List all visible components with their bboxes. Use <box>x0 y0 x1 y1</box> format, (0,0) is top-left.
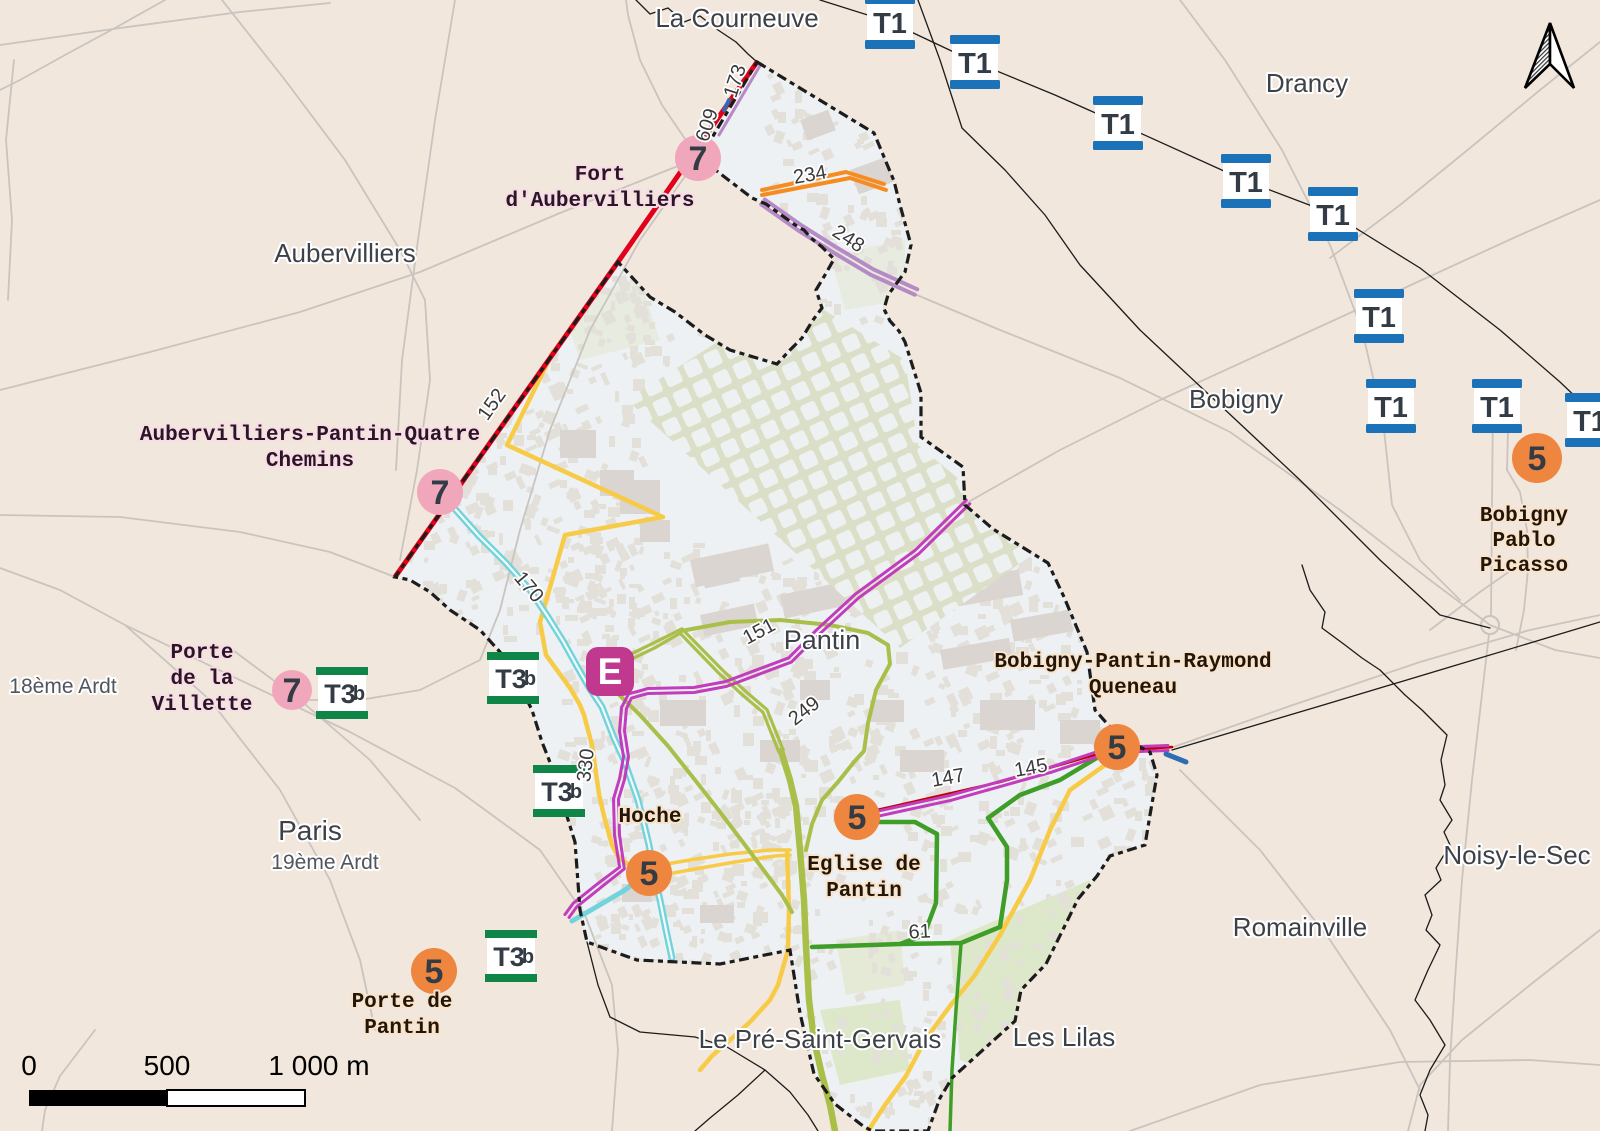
svg-text:Queneau: Queneau <box>1089 677 1177 700</box>
svg-text:b: b <box>353 683 365 705</box>
svg-text:Les Lilas: Les Lilas <box>1013 1022 1116 1052</box>
svg-text:T1: T1 <box>1362 302 1396 334</box>
svg-text:T1: T1 <box>1480 392 1514 424</box>
svg-text:Picasso: Picasso <box>1480 555 1568 578</box>
svg-text:7: 7 <box>689 140 708 178</box>
svg-text:Drancy: Drancy <box>1266 68 1348 98</box>
svg-text:1 000 m: 1 000 m <box>268 1050 369 1081</box>
svg-text:7: 7 <box>283 672 302 710</box>
svg-text:T1: T1 <box>1316 200 1350 232</box>
svg-text:d'Aubervilliers: d'Aubervilliers <box>505 190 694 213</box>
svg-text:T1: T1 <box>1101 109 1135 141</box>
svg-text:b: b <box>522 946 534 968</box>
svg-text:Bobigny: Bobigny <box>1480 505 1569 528</box>
svg-text:61: 61 <box>908 920 931 943</box>
svg-text:La Courneuve: La Courneuve <box>655 3 818 33</box>
svg-text:T1: T1 <box>1229 167 1263 199</box>
svg-text:Aubervilliers: Aubervilliers <box>274 238 416 268</box>
svg-text:de la: de la <box>170 668 233 691</box>
svg-text:E: E <box>598 651 623 692</box>
svg-text:Pantin: Pantin <box>826 880 902 903</box>
svg-text:Bobigny: Bobigny <box>1189 384 1283 414</box>
svg-text:5: 5 <box>425 953 444 991</box>
svg-text:Noisy-le-Sec: Noisy-le-Sec <box>1443 840 1590 870</box>
svg-text:Eglise de: Eglise de <box>807 854 920 877</box>
svg-text:T1: T1 <box>958 48 992 80</box>
svg-text:5: 5 <box>640 855 659 893</box>
svg-text:Porte: Porte <box>170 642 233 665</box>
svg-text:b: b <box>524 668 536 690</box>
svg-text:T1: T1 <box>1573 406 1600 438</box>
svg-text:Fort: Fort <box>575 164 625 187</box>
svg-text:Bobigny-Pantin-Raymond: Bobigny-Pantin-Raymond <box>994 651 1271 674</box>
svg-text:Villette: Villette <box>152 694 253 717</box>
svg-text:330: 330 <box>573 747 599 783</box>
svg-text:18ème Ardt: 18ème Ardt <box>9 675 117 698</box>
svg-text:T3: T3 <box>493 942 525 972</box>
svg-text:500: 500 <box>144 1050 191 1081</box>
svg-text:Pantin: Pantin <box>364 1017 440 1040</box>
svg-text:5: 5 <box>1108 729 1127 767</box>
svg-text:b: b <box>570 781 582 803</box>
svg-text:Paris: Paris <box>278 815 342 846</box>
svg-text:19ème Ardt: 19ème Ardt <box>271 851 379 874</box>
svg-text:T3: T3 <box>541 777 573 807</box>
svg-text:7: 7 <box>431 474 450 512</box>
svg-text:Chemins: Chemins <box>266 450 354 473</box>
svg-text:T3: T3 <box>324 679 356 709</box>
svg-text:T1: T1 <box>873 8 907 40</box>
svg-text:Aubervilliers-Pantin-Quatre: Aubervilliers-Pantin-Quatre <box>140 424 480 447</box>
svg-text:5: 5 <box>848 799 867 837</box>
svg-text:Pantin: Pantin <box>784 625 861 655</box>
svg-text:Le Pré-Saint-Gervais: Le Pré-Saint-Gervais <box>699 1024 942 1054</box>
svg-text:T1: T1 <box>1374 392 1408 424</box>
svg-text:Porte de: Porte de <box>352 991 453 1014</box>
svg-text:0: 0 <box>21 1050 37 1081</box>
svg-text:5: 5 <box>1528 440 1547 478</box>
svg-text:T3: T3 <box>495 664 527 694</box>
svg-text:Romainville: Romainville <box>1233 912 1367 942</box>
svg-text:Hoche: Hoche <box>618 806 681 829</box>
svg-text:Pablo: Pablo <box>1492 530 1555 553</box>
